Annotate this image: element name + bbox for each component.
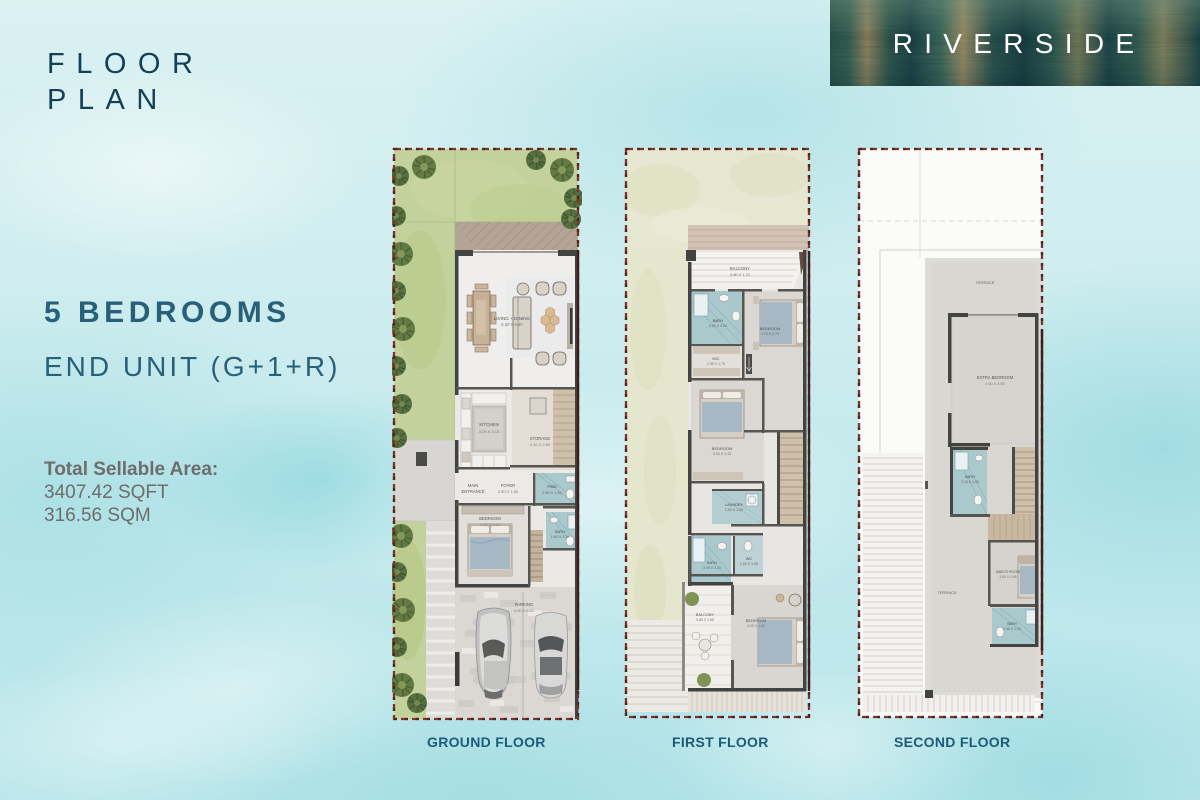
svg-text:2.55 X 1.75: 2.55 X 1.75 (707, 362, 725, 366)
svg-text:LIVING + DINING: LIVING + DINING (494, 316, 531, 321)
svg-text:1.60 X 3.10: 1.60 X 3.10 (551, 535, 569, 539)
svg-text:BEDROOM: BEDROOM (760, 326, 781, 331)
svg-text:6.00 X 5.53: 6.00 X 5.53 (514, 609, 533, 613)
svg-text:2.50 X 1.50: 2.50 X 1.50 (498, 489, 519, 494)
svg-text:BATH: BATH (707, 561, 717, 565)
svg-text:BATH: BATH (713, 318, 723, 323)
svg-text:BATH: BATH (965, 475, 975, 479)
svg-text:BEDROOM: BEDROOM (746, 618, 767, 623)
svg-text:4.60 X 4.50: 4.60 X 4.50 (985, 382, 1004, 386)
svg-text:BATH: BATH (1007, 622, 1017, 626)
svg-text:2.60 X 2.55: 2.60 X 2.55 (999, 575, 1016, 579)
svg-text:BEDROOM: BEDROOM (712, 446, 733, 451)
svg-text:4.75 X 4.75: 4.75 X 4.75 (761, 332, 779, 336)
svg-text:2.60 X 2.20: 2.60 X 2.20 (709, 324, 727, 328)
svg-text:EXTRA BEDROOM: EXTRA BEDROOM (977, 375, 1014, 380)
svg-text:TERRACE: TERRACE (937, 590, 956, 595)
svg-text:3.55 X 3.15: 3.55 X 3.15 (713, 452, 731, 456)
svg-text:2.46 X 1.55: 2.46 X 1.55 (1003, 627, 1020, 631)
svg-text:3.00 X 2.20: 3.00 X 2.20 (703, 566, 721, 570)
svg-text:RIVERSIDE: RIVERSIDE (893, 28, 1146, 59)
svg-text:BEDROOM: BEDROOM (479, 516, 501, 521)
svg-text:WIC: WIC (712, 357, 720, 361)
svg-text:2.00 X 1.90: 2.00 X 1.90 (725, 508, 743, 512)
svg-text:BALCONY: BALCONY (696, 613, 715, 617)
svg-text:1.60 X 1.90: 1.60 X 1.90 (740, 562, 758, 566)
svg-text:4.25 X 4.50: 4.25 X 4.50 (747, 624, 765, 628)
svg-text:5.80 X 1.70: 5.80 X 1.70 (730, 273, 749, 277)
svg-text:MAID'S ROOM: MAID'S ROOM (996, 570, 1020, 574)
svg-text:BALCONY: BALCONY (730, 266, 750, 271)
svg-text:TERRACE: TERRACE (975, 280, 994, 285)
svg-text:ENTRANCE: ENTRANCE (461, 489, 484, 494)
svg-text:3.85 X 1.66: 3.85 X 1.66 (696, 618, 714, 622)
svg-text:BATH: BATH (555, 530, 565, 534)
svg-text:KITCHEN: KITCHEN (479, 422, 498, 427)
svg-text:MAIN: MAIN (468, 483, 478, 488)
svg-text:FOYER: FOYER (501, 483, 515, 488)
svg-text:2.20 X 2.50: 2.20 X 2.50 (530, 442, 551, 447)
svg-text:LAUNDRY: LAUNDRY (725, 503, 744, 507)
svg-text:2.50 X 1.50: 2.50 X 1.50 (542, 491, 561, 495)
svg-text:PWD: PWD (547, 484, 556, 489)
svg-text:PARKING: PARKING (515, 602, 534, 607)
svg-text:STORAGE: STORAGE (530, 436, 551, 441)
svg-text:6.30 X 5.60: 6.30 X 5.60 (501, 322, 523, 327)
svg-text:WC: WC (746, 557, 753, 561)
svg-text:3.30 X 3.10: 3.30 X 3.10 (480, 523, 499, 527)
svg-text:3.25 X 3.15: 3.25 X 3.15 (479, 429, 500, 434)
svg-text:2.15 X 1.50: 2.15 X 1.50 (961, 480, 979, 484)
